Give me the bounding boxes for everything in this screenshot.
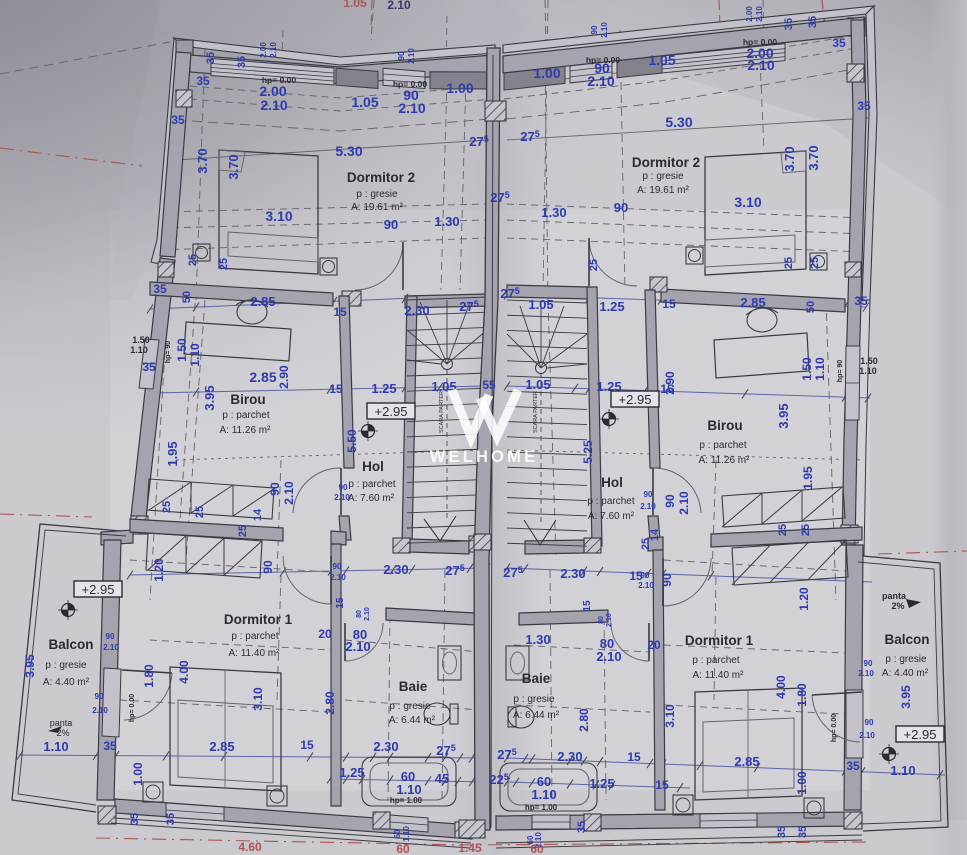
svg-text:35: 35 bbox=[129, 813, 141, 825]
svg-text:2.85: 2.85 bbox=[250, 294, 275, 309]
svg-text:1.30: 1.30 bbox=[525, 632, 550, 647]
svg-text:2.10: 2.10 bbox=[747, 57, 774, 73]
svg-text:p : parchet: p : parchet bbox=[231, 631, 278, 642]
svg-text:3.70: 3.70 bbox=[226, 154, 241, 179]
svg-text:5.30: 5.30 bbox=[665, 114, 692, 130]
svg-text:p : gresie: p : gresie bbox=[885, 654, 927, 665]
svg-text:35: 35 bbox=[854, 294, 868, 308]
svg-text:hp= 90: hp= 90 bbox=[165, 341, 172, 363]
svg-text:A: 4.40 m²: A: 4.40 m² bbox=[43, 677, 90, 688]
svg-text:1.10: 1.10 bbox=[396, 782, 421, 797]
svg-text:3.70: 3.70 bbox=[806, 145, 821, 170]
svg-text:90: 90 bbox=[663, 494, 677, 508]
svg-text:15: 15 bbox=[300, 738, 314, 752]
svg-text:25: 25 bbox=[777, 524, 789, 536]
svg-text:2.80: 2.80 bbox=[577, 708, 591, 732]
svg-text:2.10: 2.10 bbox=[92, 706, 108, 715]
svg-text:35: 35 bbox=[142, 360, 156, 374]
svg-text:4.60: 4.60 bbox=[238, 840, 262, 854]
svg-text:35: 35 bbox=[171, 113, 185, 127]
svg-text:2.10: 2.10 bbox=[600, 22, 609, 38]
svg-text:hp= 1.00: hp= 1.00 bbox=[390, 796, 423, 805]
svg-text:2.85: 2.85 bbox=[249, 369, 276, 385]
svg-text:15: 15 bbox=[582, 600, 593, 612]
svg-text:25: 25 bbox=[800, 524, 812, 536]
svg-text:90: 90 bbox=[95, 692, 104, 701]
svg-text:90: 90 bbox=[339, 483, 348, 492]
svg-text:1.10: 1.10 bbox=[130, 345, 148, 355]
svg-text:2.85: 2.85 bbox=[740, 295, 765, 310]
svg-text:3.10: 3.10 bbox=[251, 687, 265, 711]
svg-text:2.30: 2.30 bbox=[373, 739, 398, 754]
svg-text:2.10: 2.10 bbox=[407, 48, 416, 64]
svg-text:2.10: 2.10 bbox=[640, 502, 656, 511]
svg-text:A: 19.61 m²: A: 19.61 m² bbox=[637, 185, 689, 196]
svg-text:90: 90 bbox=[333, 562, 342, 571]
svg-text:Birou: Birou bbox=[230, 392, 265, 407]
svg-text:1.05: 1.05 bbox=[351, 94, 378, 110]
svg-text:1.05: 1.05 bbox=[525, 377, 550, 392]
svg-text:A: 11.40 m²: A: 11.40 m² bbox=[229, 648, 281, 659]
svg-text:2.10: 2.10 bbox=[587, 73, 614, 89]
svg-text:1.80: 1.80 bbox=[795, 683, 809, 707]
svg-text:3.95: 3.95 bbox=[23, 654, 37, 678]
svg-text:Balcon: Balcon bbox=[884, 632, 929, 647]
svg-text:35: 35 bbox=[103, 739, 117, 753]
svg-text:1.25: 1.25 bbox=[599, 299, 624, 314]
svg-text:Hol: Hol bbox=[601, 475, 623, 490]
svg-text:90: 90 bbox=[261, 560, 275, 574]
svg-text:35: 35 bbox=[205, 52, 217, 64]
svg-text:p : parchet: p : parchet bbox=[222, 410, 269, 421]
svg-text:20: 20 bbox=[647, 638, 661, 652]
svg-text:90: 90 bbox=[644, 490, 653, 499]
svg-text:2.10: 2.10 bbox=[269, 42, 278, 58]
svg-text:hp= 0.00: hp= 0.00 bbox=[129, 694, 136, 722]
svg-text:hp= 0.00: hp= 0.00 bbox=[831, 714, 838, 742]
svg-text:Dormitor 1: Dormitor 1 bbox=[224, 612, 293, 627]
svg-text:35: 35 bbox=[846, 759, 860, 773]
svg-text:2.10: 2.10 bbox=[103, 643, 119, 652]
svg-text:1.00: 1.00 bbox=[446, 80, 473, 96]
svg-text:90: 90 bbox=[590, 25, 599, 34]
svg-text:p : gresie: p : gresie bbox=[356, 189, 398, 200]
svg-text:1.05: 1.05 bbox=[528, 297, 553, 312]
svg-text:2.85: 2.85 bbox=[734, 754, 759, 769]
svg-text:3.10: 3.10 bbox=[265, 208, 292, 224]
svg-text:90: 90 bbox=[864, 659, 873, 668]
svg-text:35: 35 bbox=[776, 826, 788, 838]
svg-text:p : gresie: p : gresie bbox=[45, 660, 87, 671]
svg-text:50: 50 bbox=[181, 291, 193, 303]
svg-text:1.00: 1.00 bbox=[795, 771, 809, 795]
svg-text:25: 25 bbox=[588, 259, 600, 271]
svg-text:2.10: 2.10 bbox=[596, 649, 621, 664]
svg-text:55: 55 bbox=[482, 378, 496, 392]
svg-text:1.45: 1.45 bbox=[458, 841, 482, 855]
svg-text:2.30: 2.30 bbox=[557, 749, 582, 764]
svg-text:35: 35 bbox=[165, 813, 177, 825]
svg-text:2.10: 2.10 bbox=[606, 613, 613, 627]
svg-text:90: 90 bbox=[865, 718, 874, 727]
svg-text:90: 90 bbox=[660, 573, 674, 587]
svg-text:2.30: 2.30 bbox=[560, 566, 585, 581]
svg-text:p : parchet: p : parchet bbox=[699, 440, 746, 451]
svg-text:2.10: 2.10 bbox=[330, 573, 346, 582]
svg-text:p : parchet: p : parchet bbox=[348, 479, 395, 490]
svg-text:2.10: 2.10 bbox=[345, 639, 370, 654]
svg-text:15: 15 bbox=[335, 597, 346, 609]
svg-text:SCARA PARTER: SCARA PARTER bbox=[439, 391, 445, 433]
svg-text:20: 20 bbox=[318, 627, 332, 641]
svg-text:A: 6.44 m²: A: 6.44 m² bbox=[389, 715, 436, 726]
svg-text:2.00: 2.00 bbox=[745, 6, 754, 22]
svg-text:SCARA PARTER: SCARA PARTER bbox=[533, 391, 539, 433]
svg-text:p : gresie: p : gresie bbox=[642, 171, 684, 182]
svg-text:1.00: 1.00 bbox=[131, 762, 145, 786]
svg-text:60: 60 bbox=[396, 842, 410, 855]
svg-text:hp= 90: hp= 90 bbox=[837, 360, 844, 382]
svg-text:15: 15 bbox=[662, 297, 676, 311]
svg-text:p : parchet: p : parchet bbox=[587, 496, 634, 507]
svg-text:1.20: 1.20 bbox=[797, 587, 811, 611]
svg-text:4.00: 4.00 bbox=[774, 675, 788, 699]
svg-text:35: 35 bbox=[832, 36, 846, 50]
svg-text:45: 45 bbox=[435, 771, 449, 786]
svg-text:3.95: 3.95 bbox=[899, 685, 913, 709]
svg-text:1.10: 1.10 bbox=[890, 763, 915, 778]
svg-text:2.90: 2.90 bbox=[663, 371, 677, 395]
svg-text:2.90: 2.90 bbox=[277, 365, 291, 389]
svg-text:35: 35 bbox=[797, 826, 809, 838]
svg-text:Birou: Birou bbox=[707, 418, 742, 433]
svg-text:50: 50 bbox=[805, 301, 817, 313]
svg-text:2%: 2% bbox=[891, 601, 904, 611]
svg-text:35: 35 bbox=[807, 16, 819, 28]
svg-text:80: 80 bbox=[598, 616, 605, 624]
svg-text:1.25: 1.25 bbox=[589, 776, 614, 791]
svg-text:WELHOME: WELHOME bbox=[430, 448, 539, 466]
svg-text:5.50: 5.50 bbox=[345, 429, 359, 453]
svg-text:5.25: 5.25 bbox=[581, 440, 595, 464]
svg-text:3.95: 3.95 bbox=[202, 385, 217, 410]
svg-text:2.10: 2.10 bbox=[638, 581, 654, 590]
svg-text:15: 15 bbox=[333, 305, 347, 319]
svg-text:+2.95: +2.95 bbox=[375, 404, 408, 419]
svg-text:3.95: 3.95 bbox=[776, 403, 791, 428]
svg-text:90: 90 bbox=[106, 632, 115, 641]
svg-text:2.10: 2.10 bbox=[858, 669, 874, 678]
svg-text:14: 14 bbox=[252, 508, 264, 521]
svg-text:1.50: 1.50 bbox=[175, 338, 189, 362]
svg-text:A: 11.40 m²: A: 11.40 m² bbox=[693, 670, 745, 681]
svg-text:3.10: 3.10 bbox=[663, 704, 677, 728]
svg-text:A: 6.44 m²: A: 6.44 m² bbox=[513, 710, 560, 721]
svg-text:1.05: 1.05 bbox=[648, 52, 675, 68]
svg-text:A: 7.60 m²: A: 7.60 m² bbox=[348, 493, 395, 504]
svg-text:60: 60 bbox=[393, 829, 402, 838]
svg-text:1.00: 1.00 bbox=[533, 65, 560, 81]
svg-text:35: 35 bbox=[857, 99, 871, 113]
svg-text:3.10: 3.10 bbox=[734, 194, 761, 210]
svg-text:90: 90 bbox=[641, 571, 650, 580]
svg-text:2.10: 2.10 bbox=[755, 6, 764, 22]
svg-text:35: 35 bbox=[153, 282, 167, 296]
svg-text:25: 25 bbox=[161, 501, 173, 513]
svg-text:Dormitor 1: Dormitor 1 bbox=[685, 633, 754, 648]
svg-text:1.50: 1.50 bbox=[860, 356, 878, 366]
svg-text:1.10: 1.10 bbox=[402, 826, 411, 842]
svg-text:1.80: 1.80 bbox=[142, 664, 156, 688]
svg-text:80: 80 bbox=[356, 610, 363, 618]
svg-text:35: 35 bbox=[236, 56, 248, 68]
svg-text:A: 7.60 m²: A: 7.60 m² bbox=[588, 511, 635, 522]
svg-text:2.10: 2.10 bbox=[677, 491, 691, 515]
svg-text:1.25: 1.25 bbox=[339, 765, 364, 780]
svg-text:2.10: 2.10 bbox=[260, 97, 287, 113]
svg-text:1.10: 1.10 bbox=[813, 357, 827, 381]
svg-text:Balcon: Balcon bbox=[48, 637, 93, 652]
svg-text:1.05: 1.05 bbox=[343, 0, 367, 10]
svg-text:+2.95: +2.95 bbox=[619, 392, 652, 407]
svg-text:25: 25 bbox=[194, 506, 206, 518]
svg-text:hp= 1.00: hp= 1.00 bbox=[525, 803, 558, 812]
svg-text:A: 4.40 m²: A: 4.40 m² bbox=[882, 668, 929, 679]
svg-text:1.10: 1.10 bbox=[188, 343, 202, 367]
svg-text:35: 35 bbox=[783, 18, 795, 30]
svg-text:1.95: 1.95 bbox=[165, 441, 180, 466]
svg-text:2.85: 2.85 bbox=[209, 739, 234, 754]
svg-text:p : gresie: p : gresie bbox=[389, 701, 431, 712]
svg-text:Baie: Baie bbox=[399, 679, 428, 694]
svg-text:2.30: 2.30 bbox=[404, 303, 429, 318]
svg-text:35: 35 bbox=[576, 821, 588, 833]
svg-text:2.10: 2.10 bbox=[282, 481, 296, 505]
svg-text:p : parchet: p : parchet bbox=[692, 655, 739, 666]
svg-text:15: 15 bbox=[655, 778, 669, 792]
svg-text:2.10: 2.10 bbox=[364, 607, 371, 621]
svg-text:2.80: 2.80 bbox=[323, 691, 337, 715]
svg-text:90: 90 bbox=[397, 51, 406, 60]
svg-text:Baie: Baie bbox=[522, 671, 551, 686]
svg-text:2.00: 2.00 bbox=[259, 42, 268, 58]
svg-text:15: 15 bbox=[627, 750, 641, 764]
svg-text:4.00: 4.00 bbox=[177, 660, 191, 684]
svg-text:1.10: 1.10 bbox=[43, 739, 68, 754]
svg-text:1.10: 1.10 bbox=[531, 787, 556, 802]
svg-text:1.30: 1.30 bbox=[434, 214, 459, 229]
svg-text:A: 19.61 m²: A: 19.61 m² bbox=[351, 202, 403, 213]
svg-text:25: 25 bbox=[783, 257, 795, 269]
svg-text:1.95: 1.95 bbox=[801, 466, 815, 490]
svg-text:p : gresie: p : gresie bbox=[513, 694, 555, 705]
svg-text:2.10: 2.10 bbox=[398, 100, 425, 116]
svg-text:+2.95: +2.95 bbox=[82, 582, 115, 597]
svg-text:90: 90 bbox=[614, 200, 628, 215]
svg-text:3.70: 3.70 bbox=[782, 146, 797, 171]
svg-text:90: 90 bbox=[268, 482, 282, 496]
svg-text:Dormitor 2: Dormitor 2 bbox=[347, 170, 415, 185]
svg-text:25: 25 bbox=[237, 525, 249, 537]
svg-text:35: 35 bbox=[196, 74, 210, 88]
svg-text:A: 11.26 m²: A: 11.26 m² bbox=[220, 425, 272, 436]
svg-text:25: 25 bbox=[640, 538, 652, 550]
svg-text:Hol: Hol bbox=[362, 459, 384, 474]
svg-text:25: 25 bbox=[218, 258, 230, 270]
svg-text:15: 15 bbox=[329, 382, 343, 396]
svg-text:1.20: 1.20 bbox=[152, 558, 166, 582]
svg-text:Dormitor 2: Dormitor 2 bbox=[632, 155, 700, 170]
svg-text:25: 25 bbox=[809, 257, 821, 269]
svg-text:1.30: 1.30 bbox=[541, 205, 566, 220]
svg-text:1.10: 1.10 bbox=[859, 366, 877, 376]
svg-text:3.70: 3.70 bbox=[195, 148, 210, 173]
svg-text:+2.95: +2.95 bbox=[904, 727, 937, 742]
svg-text:2.30: 2.30 bbox=[383, 562, 408, 577]
svg-text:1.50: 1.50 bbox=[132, 335, 150, 345]
svg-text:1.25: 1.25 bbox=[371, 381, 396, 396]
svg-text:1.50: 1.50 bbox=[800, 357, 814, 381]
svg-text:2.10: 2.10 bbox=[387, 0, 411, 12]
svg-text:25: 25 bbox=[187, 254, 199, 266]
svg-text:90: 90 bbox=[384, 217, 398, 232]
svg-text:5.30: 5.30 bbox=[335, 143, 362, 159]
svg-text:A: 11.26 m²: A: 11.26 m² bbox=[699, 455, 751, 466]
svg-text:2.10: 2.10 bbox=[859, 731, 875, 740]
svg-text:panta: panta bbox=[882, 591, 907, 601]
svg-text:60: 60 bbox=[530, 842, 544, 855]
